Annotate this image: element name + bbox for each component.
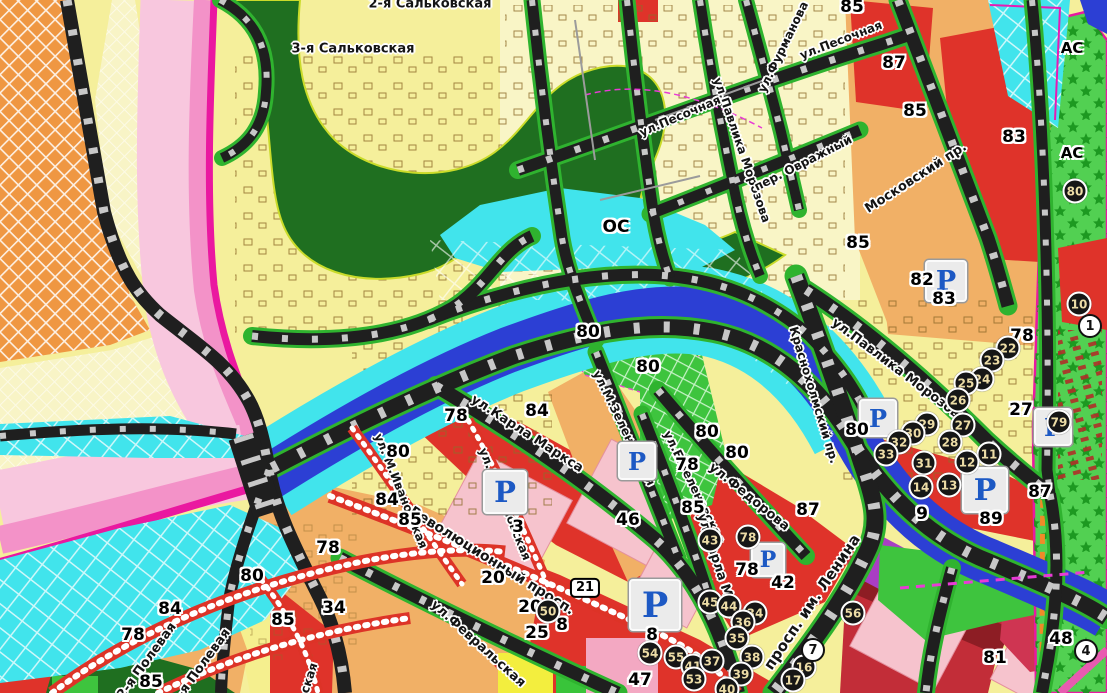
zone-number: 87 bbox=[882, 53, 906, 73]
zone-number: 87 bbox=[1028, 482, 1052, 502]
street-label: ул.Февральская bbox=[428, 597, 529, 690]
zone-number: 83 bbox=[1002, 127, 1026, 147]
street-label: ская bbox=[298, 661, 321, 693]
parking-icon: Р bbox=[483, 470, 527, 514]
point-marker-dark: 14 bbox=[909, 475, 934, 500]
zone-number: 80 bbox=[725, 443, 749, 463]
point-marker-dark: 13 bbox=[937, 473, 962, 498]
map-label-overlay: 3-я Сальковская2-я Сальковскаяул.Песочна… bbox=[0, 0, 1107, 693]
point-marker-dark: 33 bbox=[874, 442, 899, 467]
zone-number: 89 bbox=[979, 509, 1003, 529]
point-marker-dark: 10 bbox=[1067, 292, 1092, 317]
zone-number: 85 bbox=[846, 233, 870, 253]
point-marker-light: 4 bbox=[1074, 639, 1098, 663]
zone-number: 47 bbox=[628, 670, 652, 690]
zone-number: 87 bbox=[796, 500, 820, 520]
street-label: 3-я Сальковская bbox=[292, 42, 415, 57]
zone-number: 83 bbox=[932, 289, 956, 309]
point-marker-dark: 43 bbox=[698, 528, 723, 553]
zone-number: 85 bbox=[398, 510, 422, 530]
point-marker-dark: 50 bbox=[536, 599, 561, 624]
zone-number: 84 bbox=[158, 599, 182, 619]
parking-icon: Р bbox=[618, 442, 656, 480]
zone-number: 78 bbox=[675, 455, 699, 475]
zone-number: 78 bbox=[121, 625, 145, 645]
zone-number: 80 bbox=[386, 442, 410, 462]
point-marker-dark: 54 bbox=[638, 641, 663, 666]
zone-number: 85 bbox=[681, 498, 705, 518]
zone-number: 80 bbox=[636, 357, 660, 377]
map-canvas[interactable]: 3-я Сальковская2-я Сальковскаяул.Песочна… bbox=[0, 0, 1107, 693]
parking-icon: Р bbox=[629, 579, 681, 631]
zone-number: 42 bbox=[771, 573, 795, 593]
zone-number: 78 bbox=[316, 538, 340, 558]
point-marker-dark: 31 bbox=[912, 451, 937, 476]
zone-number: 81 bbox=[983, 648, 1007, 668]
point-marker-dark: 26 bbox=[946, 388, 971, 413]
point-marker-dark: 78 bbox=[736, 525, 761, 550]
point-marker-dark: 12 bbox=[955, 450, 980, 475]
route-shield: 21 bbox=[570, 578, 600, 598]
point-marker-dark: 53 bbox=[682, 667, 707, 692]
point-marker-dark: 80 bbox=[1063, 179, 1088, 204]
street-label: ул.Б.Зеленовская bbox=[661, 428, 728, 545]
point-marker-light: 1 bbox=[1078, 314, 1102, 338]
area-code-label: ОС bbox=[603, 217, 630, 237]
zone-number: 85 bbox=[903, 101, 927, 121]
point-marker-dark: 28 bbox=[938, 430, 963, 455]
street-label: пер. Овражный bbox=[752, 132, 854, 193]
zone-number: 27 bbox=[1009, 400, 1033, 420]
zone-number: 85 bbox=[139, 672, 163, 692]
zone-number: 25 bbox=[525, 623, 549, 643]
zone-number: 78 bbox=[444, 406, 468, 426]
street-label: 2-я Сальковская bbox=[369, 0, 492, 12]
zone-number: 85 bbox=[271, 610, 295, 630]
zone-number: 84 bbox=[525, 401, 549, 421]
zone-number: 80 bbox=[695, 422, 719, 442]
zone-number: 3 bbox=[512, 517, 524, 537]
zone-number: 20 bbox=[481, 568, 505, 588]
zone-number: 80 bbox=[845, 420, 869, 440]
street-label: Краснохолмский пр. bbox=[786, 325, 841, 465]
zone-number: 78 bbox=[735, 560, 759, 580]
street-label: ул.Песочная bbox=[798, 18, 884, 62]
zone-number: 46 bbox=[616, 510, 640, 530]
zone-number: 85 bbox=[840, 0, 864, 17]
zone-number: 80 bbox=[576, 322, 600, 342]
area-code-label: АС bbox=[1061, 144, 1084, 162]
street-label: ул.Павлика Морозова bbox=[829, 315, 970, 426]
zone-number: 82 bbox=[910, 270, 934, 290]
zone-number: 80 bbox=[240, 566, 264, 586]
zone-number: 84 bbox=[375, 490, 399, 510]
street-label: 1-я Полевая bbox=[168, 626, 234, 693]
street-label: Московский пр. bbox=[862, 140, 969, 217]
point-marker-dark: 79 bbox=[1047, 410, 1072, 435]
zone-number: 34 bbox=[322, 598, 346, 618]
point-marker-dark: 56 bbox=[841, 601, 866, 626]
point-marker-light: 7 bbox=[801, 638, 825, 662]
zone-number: 48 bbox=[1049, 629, 1073, 649]
point-marker-dark: 17 bbox=[781, 668, 806, 693]
point-marker-dark: 11 bbox=[977, 442, 1002, 467]
street-label: ул.Песочная bbox=[637, 93, 723, 140]
zone-number: 9 bbox=[916, 504, 928, 524]
area-code-label: АС bbox=[1061, 39, 1084, 57]
